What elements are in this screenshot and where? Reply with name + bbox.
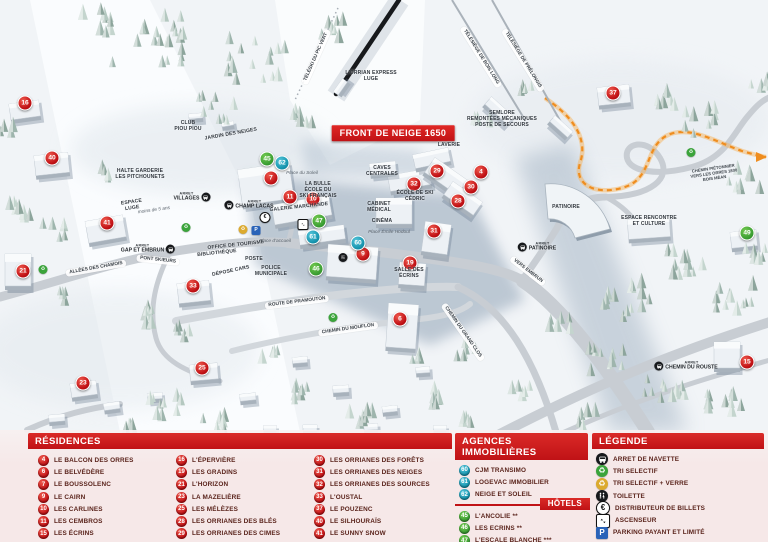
map-label: ALLÉES DES CHAMOIS <box>65 259 126 276</box>
legend-item-label: LES ORRIANES DES BLÉS <box>192 518 277 525</box>
toilet-icon <box>596 490 608 502</box>
map-label: LA BULLE ÉCOLE DU SKI FRANÇAIS <box>299 182 336 200</box>
legende-list: ARRET DE NAVETTE♻TRI SELECTIF♻TRI SELECT… <box>592 453 764 539</box>
residences-column: 30LES ORRIANES DES FORÊTS31LES ORRIANES … <box>314 454 452 540</box>
map-label: Place d'accueil <box>259 239 291 245</box>
legend-item-label: LES ORRIANES DES SOURCES <box>330 481 430 488</box>
legend-marker-4: 4 <box>38 455 49 466</box>
legend-marker-9: 9 <box>38 492 49 503</box>
legend-marker-47: 47 <box>459 535 470 542</box>
legend-marker-21: 21 <box>176 479 187 490</box>
bus-stop: ARRETPATINOIRE <box>518 243 556 252</box>
map-label: GALERIE MARCHANDE <box>269 202 328 214</box>
map-marker-6: 6 <box>393 312 408 327</box>
map-service-icon: ♻ <box>687 140 696 158</box>
map-label: CAVES CENTRALES <box>366 166 398 178</box>
legend-key-item: ♻TRI SELECTIF + VERRE <box>592 478 764 490</box>
legende-section: LÉGENDE ARRET DE NAVETTE♻TRI SELECTIF♻TR… <box>592 433 764 539</box>
legend-item: 29LES ORRIANES DES CIMES <box>176 528 314 540</box>
legend-marker-41: 41 <box>314 528 325 539</box>
bus-icon <box>201 193 210 202</box>
residences-list: 4LE BALCON DES ORRES6LE BELVÉDÈRE7LE BOU… <box>28 449 452 540</box>
legend-item: 10LES CARLINES <box>38 503 176 515</box>
legend-item-label: LE BALCON DES ORRES <box>54 457 134 464</box>
legend-item: 25LES MÉLÈZES <box>176 503 314 515</box>
legend-item-label: LOGEVAC IMMOBILIER <box>475 479 549 486</box>
legend-item-label: LE POUZENC <box>330 506 373 513</box>
legend-item: 45L'ANCOLIE ** <box>455 510 588 522</box>
map-marker-49: 49 <box>740 226 755 241</box>
bus-stop-label: ARRETVILLAGES <box>174 193 200 202</box>
legend-item-label: LES ORRIANES DES FORÊTS <box>330 457 424 464</box>
legend-key-label: TOILETTE <box>613 493 645 500</box>
elevator-icon <box>596 514 610 528</box>
bus-stop: ARRETVILLAGES <box>174 193 211 202</box>
legend-marker-62: 62 <box>459 489 470 500</box>
residences-section: RÉSIDENCES 4LE BALCON DES ORRES6LE BELVÉ… <box>28 433 452 540</box>
map-marker-4: 4 <box>474 165 489 180</box>
legend-key-item: €DISTRIBUTEUR DE BILLETS <box>592 502 764 514</box>
map-label: CHEMIN PIÉTONNIER VERS LES ORRES 1800 BO… <box>690 163 739 184</box>
map-label: HALTE GARDERIE LES PITCHOUNETS <box>115 169 164 181</box>
legend-marker-40: 40 <box>314 516 325 527</box>
legend-marker-37: 37 <box>314 504 325 515</box>
legend-key-label: DISTRIBUTEUR DE BILLETS <box>615 505 705 512</box>
map-label: CINÉMA <box>372 219 393 225</box>
bus-stop: ARRETGAP ET EMBRUN <box>121 245 175 254</box>
legend-item: 61LOGEVAC IMMOBILIER <box>455 476 588 488</box>
legend-item: 21L'HORIZON <box>176 479 314 491</box>
hotels-divider: HÔTELS <box>455 504 588 506</box>
legend-item: 9LE CAIRN <box>38 491 176 503</box>
legend-key-label: TRI SELECTIF <box>613 468 658 475</box>
map-label: Place du Soleil <box>286 171 318 177</box>
legend-key-label: TRI SELECTIF + VERRE <box>613 480 688 487</box>
bus-icon <box>518 243 527 252</box>
legend-item: 37LE POUZENC <box>314 503 452 515</box>
legend-item: 15LES ÉCRINS <box>38 528 176 540</box>
legende-header: LÉGENDE <box>592 433 764 449</box>
map-label: L'ORRIAN EXPRESS LUGE <box>345 71 396 83</box>
map-service-icon <box>298 214 309 232</box>
map-label: TÉLÉSIÈGE DE BOIS LONG <box>460 25 503 88</box>
legend-item: 19LES GRADINS <box>176 466 314 478</box>
legend-key-label: ASCENSEUR <box>615 517 656 524</box>
legend-item: 30LES ORRIANES DES FORÊTS <box>314 454 452 466</box>
legend-marker-32: 32 <box>314 479 325 490</box>
map-marker-23: 23 <box>76 376 91 391</box>
map-marker-47: 47 <box>312 214 327 229</box>
legend-item: 41LE SUNNY SNOW <box>314 528 452 540</box>
legend-item-label: NEIGE ET SOLEIL <box>475 491 532 498</box>
legend-item: 6LE BELVÉDÈRE <box>38 466 176 478</box>
map-marker-11: 11 <box>283 190 298 205</box>
bus-stop-label: ARRETPATINOIRE <box>529 243 556 252</box>
legend-item-label: LE SILHOURAÏS <box>330 518 381 525</box>
map-label: PONT SKIEURS <box>136 254 179 265</box>
map-label: POSTE <box>245 257 263 263</box>
legend-item-label: L'ANCOLIE ** <box>475 513 518 520</box>
bus-stop-label: ARRETGAP ET EMBRUN <box>121 245 164 254</box>
map-marker-41: 41 <box>100 216 115 231</box>
toilet-icon <box>339 253 348 262</box>
residences-column: 16L'ÉPERVIÈRE19LES GRADINS21L'HORIZON23L… <box>176 454 314 540</box>
legend-item: 23LA MAZELIÈRE <box>176 491 314 503</box>
map-marker-21: 21 <box>16 264 31 279</box>
legend-item: 46LES ECRINS ** <box>455 522 588 534</box>
bus-icon <box>596 453 608 465</box>
agences-list: 60CJM TRANSIMO61LOGEVAC IMMOBILIER62NEIG… <box>455 464 588 501</box>
map-marker-37: 37 <box>606 86 621 101</box>
legend-item: 7LE BOUSSOLENC <box>38 479 176 491</box>
legend-item: 28LES ORRIANES DES BLÉS <box>176 515 314 527</box>
legend-item: 32LES ORRIANES DES SOURCES <box>314 479 452 491</box>
legend-key-item: PPARKING PAYANT ET LIMITÉ <box>592 527 764 539</box>
map-service-icon: ♻ <box>239 217 248 235</box>
map-label: TÉLÉSKI DU PIC VERT <box>301 29 331 86</box>
legend-marker-46: 46 <box>459 523 470 534</box>
recycling-icon: ♻ <box>687 148 696 157</box>
map-marker-7: 7 <box>264 171 279 186</box>
legend-marker-60: 60 <box>459 465 470 476</box>
map-label: DÉPOSE CARS <box>212 265 250 279</box>
legend-marker-7: 7 <box>38 479 49 490</box>
legend-item-label: LES MÉLÈZES <box>192 506 238 513</box>
map-service-icon: ♻ <box>329 305 338 323</box>
elevator-icon <box>298 219 309 230</box>
legend-marker-19: 19 <box>176 467 187 478</box>
legend-marker-15: 15 <box>38 528 49 539</box>
legend-item: 11LES CEMBROS <box>38 515 176 527</box>
legend-item-label: LES GRADINS <box>192 469 237 476</box>
legend-item-label: LES ECRINS ** <box>475 525 522 532</box>
map-overlay: 1640412133232571110919632294302831371562… <box>0 0 768 432</box>
legend-marker-30: 30 <box>314 455 325 466</box>
recycling-icon: ♻ <box>39 265 48 274</box>
legend-item: 31LES ORRIANES DES NEIGES <box>314 466 452 478</box>
legend-panel: RÉSIDENCES 4LE BALCON DES ORRES6LE BELVÉ… <box>0 430 768 542</box>
map-marker-31: 31 <box>427 224 442 239</box>
map-marker-29: 29 <box>430 164 445 179</box>
legend-item-label: LES ÉCRINS <box>54 530 94 537</box>
map-marker-46: 46 <box>309 262 324 277</box>
map-label: CHEMIN DU GRAND CLOS <box>441 302 485 361</box>
map-marker-45: 45 <box>260 152 275 167</box>
map-label: CABINET MÉDICAL <box>367 202 391 214</box>
map-label: ÉCOLE DE SKI CÉDRIC <box>396 191 433 203</box>
legend-marker-31: 31 <box>314 467 325 478</box>
bus-icon <box>166 245 175 254</box>
legend-key-label: PARKING PAYANT ET LIMITÉ <box>613 529 705 536</box>
map-marker-60: 60 <box>351 236 366 251</box>
legend-key-label: ARRET DE NAVETTE <box>613 456 679 463</box>
legend-marker-6: 6 <box>38 467 49 478</box>
legend-marker-16: 16 <box>176 455 187 466</box>
map-service-icon: € <box>260 205 271 223</box>
legend-item: 33L'OUSTAL <box>314 491 452 503</box>
legend-item-label: CJM TRANSIMO <box>475 467 526 474</box>
map-marker-33: 33 <box>186 279 201 294</box>
legend-item-label: L'ESCALE BLANCHE *** <box>475 537 552 542</box>
map-label: SEMLORE REMONTÉES MÉCANIQUES POSTE DE SE… <box>467 111 537 129</box>
map-label: FRONT DE NEIGE 1650 <box>332 125 455 141</box>
legend-marker-23: 23 <box>176 492 187 503</box>
residences-header: RÉSIDENCES <box>28 433 452 449</box>
recycling-glass-icon: ♻ <box>596 478 608 490</box>
legend-item: 16L'ÉPERVIÈRE <box>176 454 314 466</box>
map-label: CLUB PIOU PIOU <box>174 121 201 133</box>
legend-key-item: ASCENSEUR <box>592 514 764 526</box>
recycling-icon: ♻ <box>182 223 191 232</box>
agences-section: AGENCES IMMOBILIÈRES 60CJM TRANSIMO61LOG… <box>455 433 588 542</box>
map-marker-40: 40 <box>45 151 60 166</box>
map-label: CHEMIN DU MOUFLON <box>318 322 378 337</box>
legend-item-label: LE SUNNY SNOW <box>330 530 386 537</box>
legend-item-label: L'ÉPERVIÈRE <box>192 457 236 464</box>
bus-icon <box>224 201 233 210</box>
map-service-icon <box>339 247 348 265</box>
map-label: Place Émile Hodoul <box>368 230 410 236</box>
parking-icon: P <box>596 527 608 539</box>
map-label: LAVERIE <box>438 143 460 149</box>
legend-item: 60CJM TRANSIMO <box>455 464 588 476</box>
legend-item-label: LE CAIRN <box>54 494 85 501</box>
legend-marker-29: 29 <box>176 528 187 539</box>
legend-item-label: L'OUSTAL <box>330 494 362 501</box>
map-marker-25: 25 <box>195 361 210 376</box>
legend-item-label: L'HORIZON <box>192 481 228 488</box>
bus-stop-label: ARRETCHEMIN DU ROUSTE <box>665 362 717 371</box>
legend-marker-33: 33 <box>314 492 325 503</box>
map-label: TÉLÉSIÈGE DE PRÉLONGIS <box>501 28 545 92</box>
legend-item-label: LES ORRIANES DES CIMES <box>192 530 280 537</box>
map-label: SALLE DES ÉCRINS <box>394 268 423 280</box>
bus-stop: ARRETCHEMIN DU ROUSTE <box>654 362 717 371</box>
legend-marker-11: 11 <box>38 516 49 527</box>
recycling-icon: ♻ <box>596 465 608 477</box>
legend-marker-10: 10 <box>38 504 49 515</box>
recycling-icon: ♻ <box>329 313 338 322</box>
map-label: ROUTE DE PRAMOUTON <box>265 295 330 309</box>
map-label: VERS EMBRUN <box>509 255 547 286</box>
legend-item-label: LA MAZELIÈRE <box>192 494 241 501</box>
legend-item: 4LE BALCON DES ORRES <box>38 454 176 466</box>
legend-key-item: TOILETTE <box>592 490 764 502</box>
map-label: PATINOIRE <box>552 205 580 211</box>
legend-item-label: LES ORRIANES DES NEIGES <box>330 469 422 476</box>
parking-icon: P <box>252 226 261 235</box>
legend-item-label: LES CARLINES <box>54 506 103 513</box>
legend-marker-45: 45 <box>459 511 470 522</box>
hotels-header: HÔTELS <box>540 498 590 510</box>
map-marker-16: 16 <box>18 96 33 111</box>
legend-item-label: LE BOUSSOLENC <box>54 481 111 488</box>
legend-key-item: ARRET DE NAVETTE <box>592 453 764 465</box>
agences-header: AGENCES IMMOBILIÈRES <box>455 433 588 460</box>
legend-marker-25: 25 <box>176 504 187 515</box>
map-label: ESPACE RENCONTRE ET CULTURE <box>621 216 677 228</box>
map-service-icon: ♻ <box>182 215 191 233</box>
legend-key-item: ♻TRI SELECTIF <box>592 465 764 477</box>
legend-marker-28: 28 <box>176 516 187 527</box>
legend-item-label: LE BELVÉDÈRE <box>54 469 104 476</box>
legend-item-label: LES CEMBROS <box>54 518 103 525</box>
map-marker-15: 15 <box>740 355 755 370</box>
legend-marker-61: 61 <box>459 477 470 488</box>
map-label: JARDIN DES NEIGES <box>204 127 257 142</box>
resort-map-screenshot: 1640412133232571110919632294302831371562… <box>0 0 768 542</box>
map-label: POLICE MUNICIPALE <box>255 266 287 278</box>
recycling-glass-icon: ♻ <box>239 225 248 234</box>
bus-icon <box>654 362 663 371</box>
atm-euro-icon: € <box>260 212 271 223</box>
residences-column: 4LE BALCON DES ORRES6LE BELVÉDÈRE7LE BOU… <box>38 454 176 540</box>
legend-item: 47L'ESCALE BLANCHE *** <box>455 534 588 542</box>
map-marker-30: 30 <box>464 180 479 195</box>
map-service-icon: ♻ <box>39 257 48 275</box>
map-marker-28: 28 <box>451 194 466 209</box>
hotels-list: 45L'ANCOLIE **46LES ECRINS **47L'ESCALE … <box>455 510 588 542</box>
legend-item: 40LE SILHOURAÏS <box>314 515 452 527</box>
map-marker-62: 62 <box>275 156 290 171</box>
